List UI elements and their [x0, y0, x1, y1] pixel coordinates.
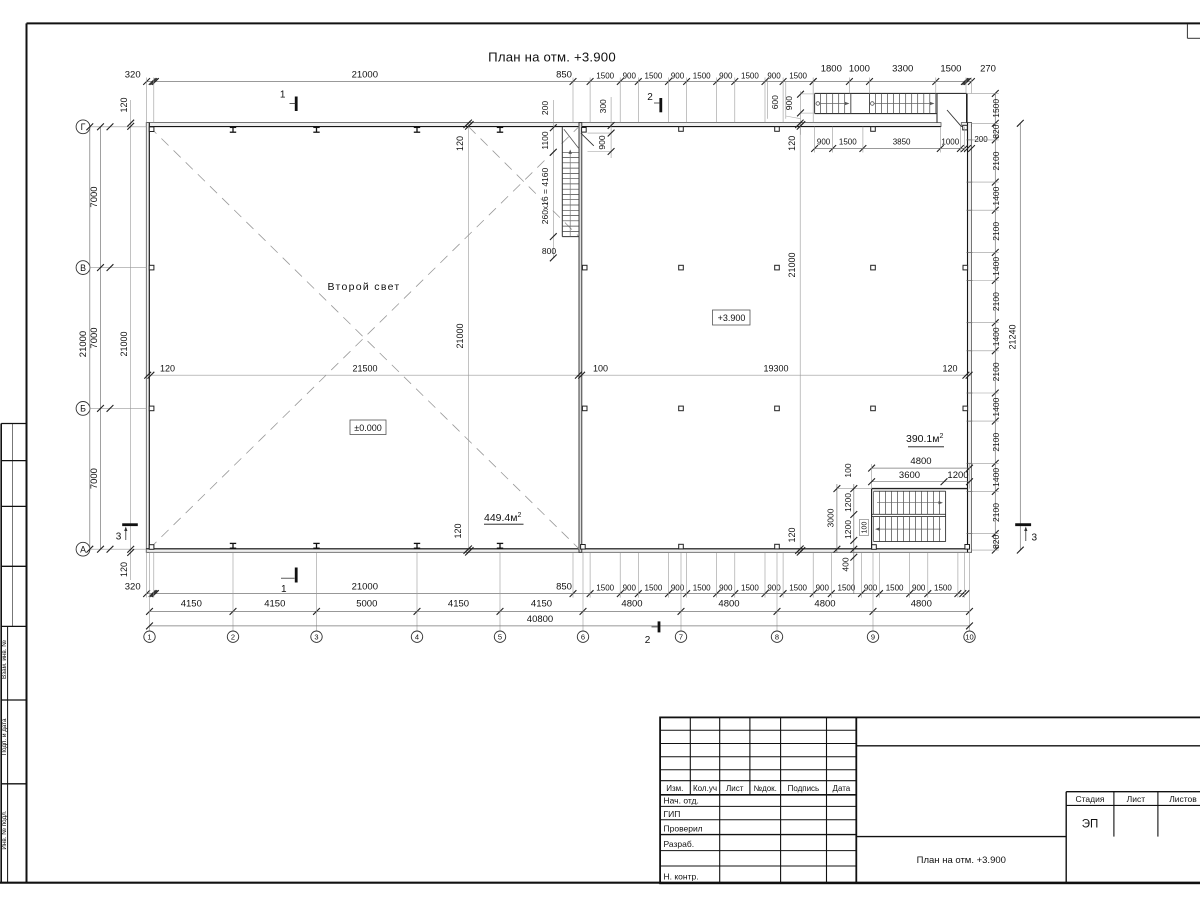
svg-text:А: А	[80, 544, 86, 554]
svg-text:5: 5	[498, 633, 502, 642]
svg-text:3: 3	[116, 532, 122, 543]
svg-text:4800: 4800	[621, 598, 642, 609]
svg-text:900: 900	[864, 583, 878, 592]
svg-text:Лист: Лист	[726, 784, 744, 793]
svg-text:120: 120	[453, 523, 463, 538]
svg-text:21000: 21000	[352, 70, 378, 81]
svg-text:7: 7	[679, 633, 683, 642]
svg-text:1400: 1400	[991, 257, 1001, 276]
svg-text:900: 900	[671, 71, 685, 80]
svg-text:820: 820	[991, 124, 1001, 138]
svg-text:1800: 1800	[821, 64, 842, 75]
svg-text:900: 900	[623, 583, 637, 592]
svg-text:1500: 1500	[645, 71, 663, 80]
svg-text:900: 900	[597, 135, 607, 149]
svg-text:1500: 1500	[886, 583, 904, 592]
svg-text:900: 900	[817, 138, 831, 147]
svg-text:200: 200	[540, 101, 550, 115]
svg-text:300: 300	[598, 99, 608, 113]
svg-text:4150: 4150	[448, 598, 469, 609]
svg-text:800: 800	[542, 246, 556, 256]
svg-text:Стадия: Стадия	[1076, 794, 1105, 804]
svg-text:6: 6	[581, 633, 585, 642]
svg-text:1000: 1000	[849, 64, 870, 75]
svg-text:Кол.уч: Кол.уч	[693, 784, 717, 793]
svg-text:120: 120	[942, 364, 957, 374]
svg-text:1500: 1500	[934, 583, 952, 592]
svg-text:2100: 2100	[991, 222, 1001, 241]
svg-text:1500: 1500	[940, 64, 961, 75]
svg-text:Инв. № подл.: Инв. № подл.	[1, 810, 8, 849]
svg-text:1400: 1400	[991, 186, 1001, 205]
svg-text:1200: 1200	[843, 520, 853, 539]
svg-text:ГИП: ГИП	[664, 809, 681, 819]
svg-text:1500: 1500	[741, 583, 759, 592]
svg-text:320: 320	[125, 582, 141, 593]
svg-text:21000: 21000	[352, 582, 378, 593]
svg-text:4800: 4800	[718, 598, 739, 609]
svg-text:850: 850	[556, 582, 572, 593]
svg-text:120: 120	[119, 562, 129, 577]
svg-text:Б: Б	[80, 404, 86, 414]
svg-text:План на отм. +3.900: План на отм. +3.900	[917, 855, 1006, 866]
svg-text:120: 120	[119, 97, 129, 112]
svg-text:Подп. и дата: Подп. и дата	[1, 718, 8, 756]
svg-text:Лист: Лист	[1127, 794, 1146, 804]
svg-text:900: 900	[623, 71, 637, 80]
svg-text:1500: 1500	[991, 99, 1001, 118]
svg-text:1500: 1500	[693, 71, 711, 80]
svg-text:4150: 4150	[181, 598, 202, 609]
svg-text:1500: 1500	[789, 71, 807, 80]
svg-text:План на отм. +3.900: План на отм. +3.900	[488, 50, 616, 65]
svg-text:Г: Г	[81, 122, 86, 132]
svg-text:1500: 1500	[596, 71, 614, 80]
svg-text:260x16 = 4160: 260x16 = 4160	[540, 167, 550, 224]
svg-text:1500: 1500	[838, 583, 856, 592]
svg-text:900: 900	[816, 583, 830, 592]
svg-text:2100: 2100	[991, 292, 1001, 311]
svg-text:320: 320	[125, 70, 141, 81]
svg-text:2: 2	[645, 635, 651, 646]
svg-text:4800: 4800	[911, 598, 932, 609]
svg-text:100: 100	[843, 463, 853, 477]
svg-text:120: 120	[787, 136, 797, 151]
svg-text:3: 3	[314, 633, 318, 642]
svg-text:Проверил: Проверил	[664, 824, 703, 834]
svg-text:4: 4	[415, 633, 419, 642]
svg-text:900: 900	[767, 583, 781, 592]
svg-text:8: 8	[775, 633, 779, 642]
svg-text:9: 9	[871, 633, 875, 642]
svg-text:270: 270	[980, 64, 996, 75]
svg-text:7000: 7000	[89, 468, 100, 489]
svg-text:900: 900	[912, 583, 926, 592]
svg-text:21500: 21500	[352, 364, 377, 374]
svg-text:10: 10	[965, 633, 973, 642]
svg-text:1500: 1500	[645, 583, 663, 592]
svg-text:21000: 21000	[119, 331, 129, 356]
svg-text:В: В	[80, 263, 86, 273]
svg-text:449.4м2: 449.4м2	[484, 512, 522, 524]
svg-text:1500: 1500	[693, 583, 711, 592]
svg-text:900: 900	[671, 583, 685, 592]
svg-text:120: 120	[787, 527, 797, 542]
svg-text:Изм.: Изм.	[666, 784, 683, 793]
svg-text:ЭП: ЭП	[1082, 819, 1099, 831]
svg-text:2100: 2100	[991, 503, 1001, 522]
svg-text:400: 400	[841, 557, 851, 571]
svg-text:900: 900	[719, 71, 733, 80]
svg-text:1: 1	[147, 633, 151, 642]
svg-text:600: 600	[770, 95, 780, 109]
svg-text:21000: 21000	[455, 323, 465, 348]
svg-text:2100: 2100	[991, 362, 1001, 381]
svg-text:Листов: Листов	[1169, 794, 1197, 804]
svg-text:900: 900	[784, 96, 794, 110]
svg-text:900: 900	[767, 71, 781, 80]
svg-text:21240: 21240	[1008, 324, 1018, 349]
svg-text:3300: 3300	[892, 64, 913, 75]
svg-text:1100: 1100	[540, 131, 550, 150]
svg-text:900: 900	[719, 583, 733, 592]
svg-text:№док.: №док.	[753, 784, 776, 793]
svg-text:2100: 2100	[991, 151, 1001, 170]
svg-text:850: 850	[556, 70, 572, 81]
svg-text:1500: 1500	[839, 138, 857, 147]
svg-text:3850: 3850	[893, 138, 911, 147]
svg-text:Н. контр.: Н. контр.	[664, 872, 699, 882]
svg-text:4150: 4150	[264, 598, 285, 609]
svg-text:820: 820	[991, 535, 1001, 549]
svg-text:120: 120	[160, 364, 175, 374]
svg-text:1200: 1200	[947, 470, 968, 481]
svg-text:3000: 3000	[825, 508, 835, 527]
svg-text:1500: 1500	[596, 583, 614, 592]
svg-text:1: 1	[281, 584, 287, 595]
svg-text:2: 2	[231, 633, 235, 642]
svg-text:21000: 21000	[78, 331, 89, 357]
svg-text:4800: 4800	[814, 598, 835, 609]
svg-text:40800: 40800	[527, 614, 553, 625]
svg-text:1400: 1400	[991, 468, 1001, 487]
svg-text:1000: 1000	[941, 138, 959, 147]
svg-text:100: 100	[593, 364, 608, 374]
svg-text:3: 3	[1032, 533, 1038, 544]
svg-text:Взам. инв. №: Взам. инв. №	[1, 640, 8, 679]
svg-text:1400: 1400	[991, 397, 1001, 416]
svg-text:21000: 21000	[787, 252, 797, 277]
svg-text:5000: 5000	[356, 598, 377, 609]
svg-text:7000: 7000	[89, 327, 100, 348]
svg-text:1500: 1500	[741, 71, 759, 80]
svg-text:2100: 2100	[991, 432, 1001, 451]
svg-text:120: 120	[455, 136, 465, 151]
svg-text:1500: 1500	[789, 583, 807, 592]
svg-text:Нач. отд.: Нач. отд.	[664, 796, 699, 806]
svg-text:Дата: Дата	[833, 784, 851, 793]
svg-text:1200: 1200	[843, 493, 853, 512]
svg-text:100: 100	[862, 522, 869, 534]
svg-text:Подпись: Подпись	[788, 784, 820, 793]
svg-text:3600: 3600	[899, 470, 920, 481]
svg-text:19300: 19300	[763, 364, 788, 374]
svg-text:Разраб.: Разраб.	[664, 839, 695, 849]
svg-text:390.1м2: 390.1м2	[906, 433, 944, 445]
svg-text:200: 200	[974, 135, 988, 144]
svg-text:7000: 7000	[89, 186, 100, 207]
svg-text:+3.900: +3.900	[718, 313, 746, 323]
svg-text:4800: 4800	[910, 456, 931, 467]
svg-text:4150: 4150	[531, 598, 552, 609]
svg-text:±0.000: ±0.000	[354, 423, 381, 433]
svg-text:1400: 1400	[991, 327, 1001, 346]
svg-text:1: 1	[280, 90, 286, 101]
svg-text:2: 2	[647, 92, 653, 103]
svg-text:Второй свет: Второй свет	[328, 281, 401, 293]
